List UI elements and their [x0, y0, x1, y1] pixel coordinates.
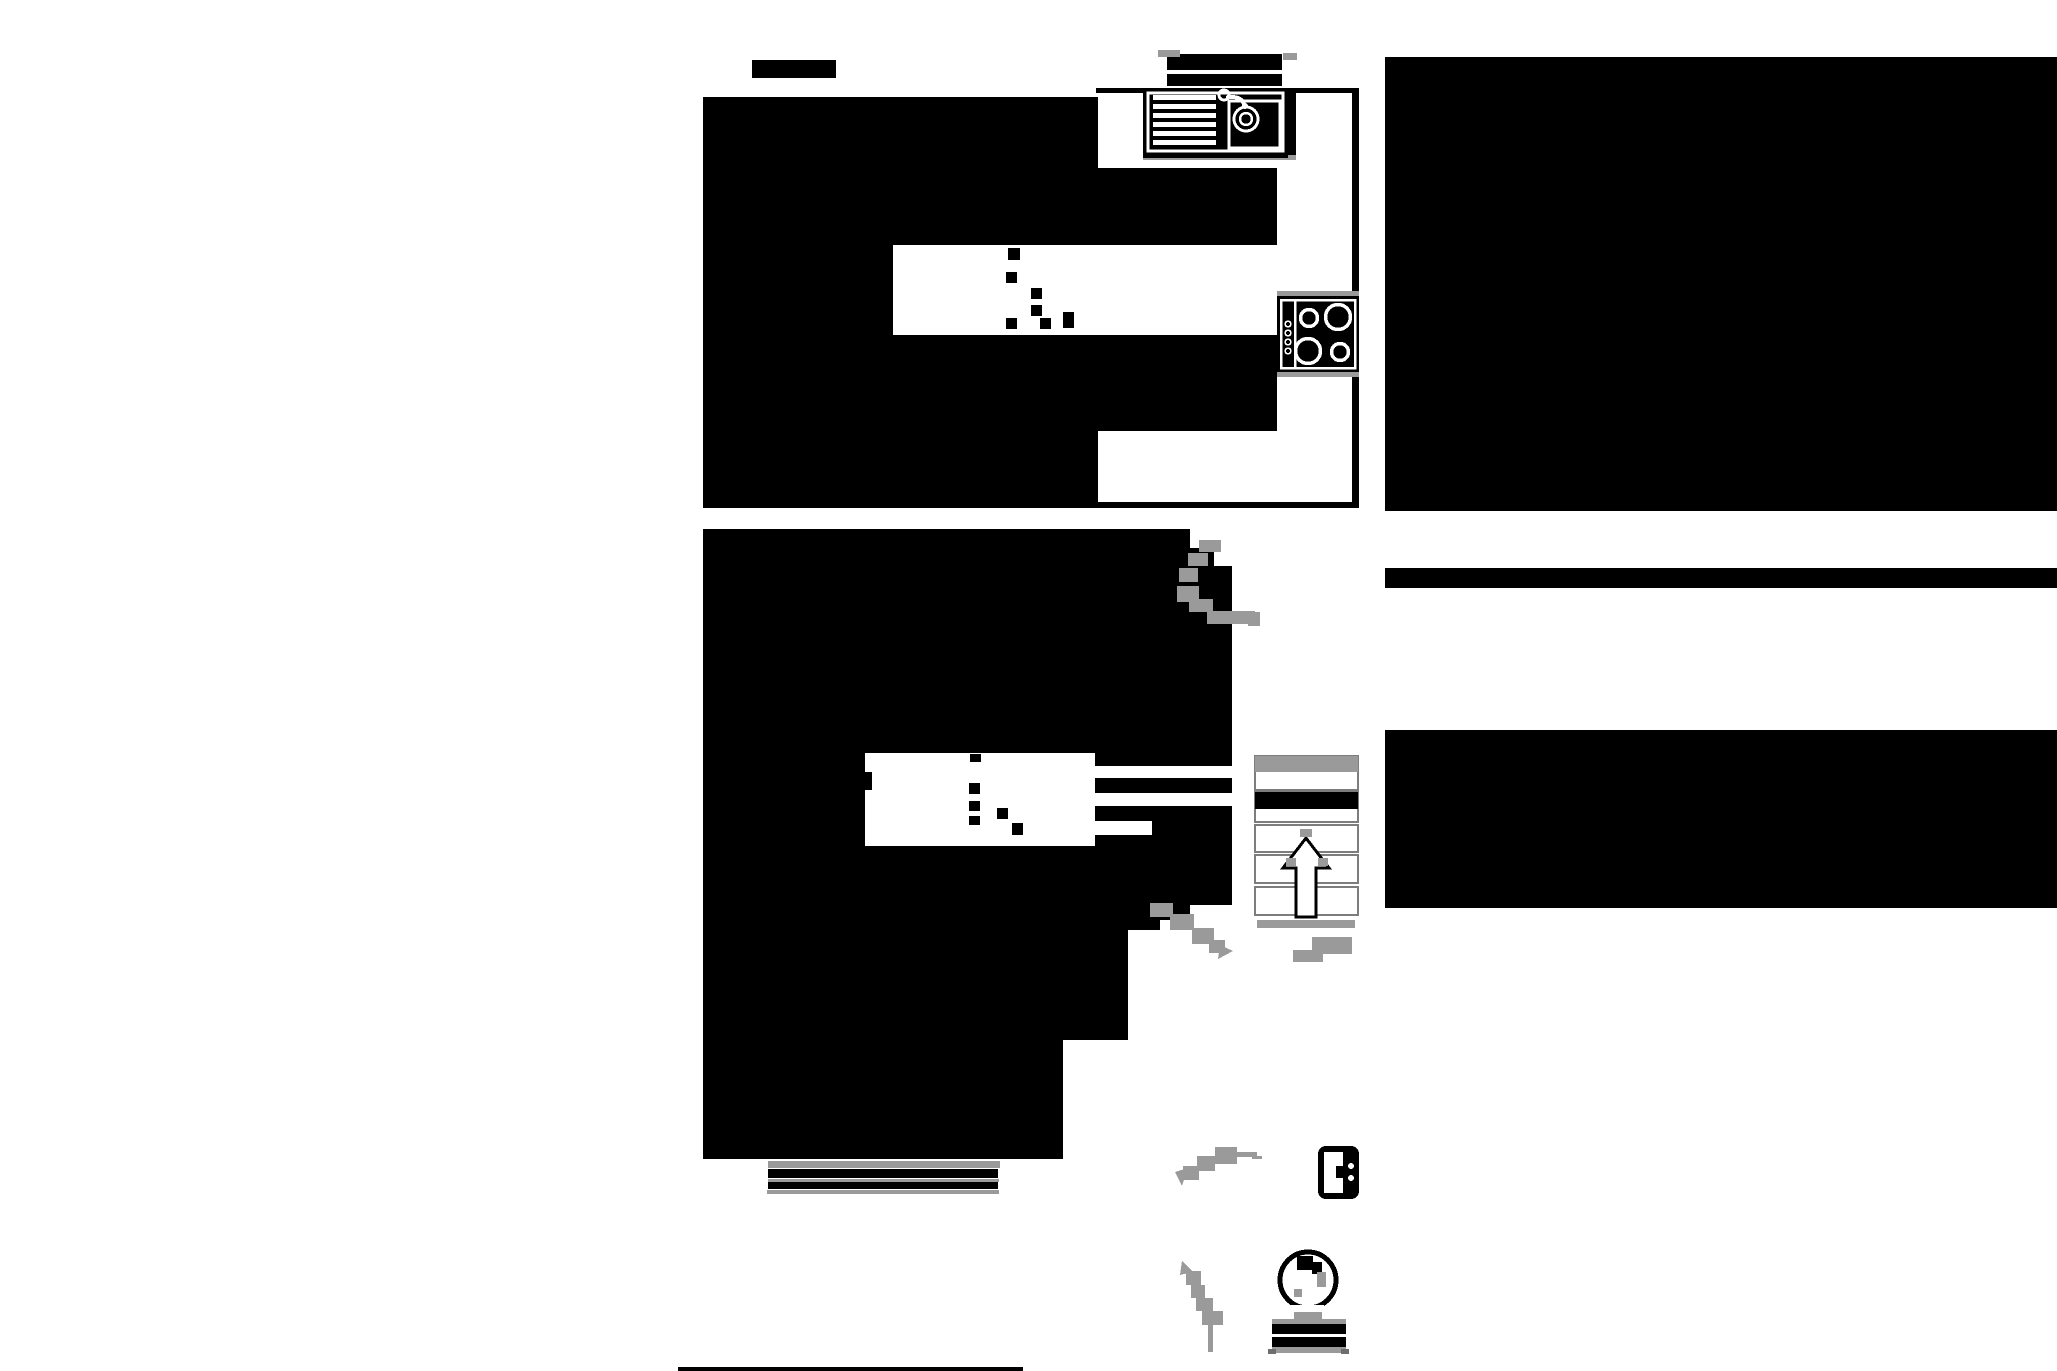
label-remnant-blob: [1095, 766, 1232, 778]
title-label-remnant: [752, 60, 836, 78]
zigzag-step: [1197, 1156, 1215, 1171]
kitchen-room-mass: [1098, 168, 1277, 245]
label-text-speck: [1031, 288, 1042, 299]
label-text-speck: [997, 808, 1008, 819]
floor-plan-page: [0, 0, 2057, 1371]
window-band: [1158, 50, 1180, 57]
stair-tread-band: [1255, 792, 1358, 809]
zigzag-step: [1189, 599, 1213, 612]
toilet-cistern: [1341, 1349, 1349, 1354]
faucet-tip: [1242, 103, 1248, 109]
bay-window-band: [768, 1179, 999, 1182]
bay-window-band: [767, 1190, 999, 1194]
zigzag-arrowhead: [1218, 945, 1233, 959]
adjacent-structure-block: [1385, 730, 2057, 908]
arrow-speck: [1318, 858, 1328, 866]
toilet-cistern: [1272, 1337, 1346, 1347]
kitchen-room-mass: [703, 97, 1098, 245]
hob-icon: [1277, 291, 1359, 377]
kitchen-wall: [1098, 502, 1359, 508]
toilet-cistern: [1272, 1324, 1346, 1334]
window-band: [1167, 74, 1282, 86]
zigzag-step: [1196, 1298, 1213, 1311]
sink-drainer-bar: [1153, 131, 1216, 136]
label-text-speck: [969, 783, 980, 794]
toilet-neck: [1294, 1312, 1322, 1320]
hob-edge-cap: [1277, 291, 1359, 296]
window-band: [1283, 53, 1297, 60]
label-remnant-blob: [1095, 793, 1232, 806]
arrow-speck: [1286, 858, 1296, 866]
kitchen-room-mass: [1098, 335, 1277, 431]
zigzag-step: [1248, 612, 1260, 626]
label-text-speck: [1031, 305, 1042, 316]
zigzag-step: [1191, 1285, 1205, 1298]
sink-drainer-bar: [1153, 140, 1216, 145]
door-hinge-dot: [1348, 1175, 1354, 1181]
bay-window-bands: [767, 1161, 1000, 1194]
stair-landing: [1293, 950, 1323, 962]
label-text-speck: [1040, 318, 1051, 329]
stair-tread-band: [1255, 756, 1358, 772]
toilet-bowl-mark: [1317, 1272, 1326, 1287]
label-text-speck: [865, 772, 872, 790]
label-text-speck: [1063, 312, 1074, 328]
bay-window-band: [768, 1161, 1000, 1168]
bay-window-band: [768, 1182, 998, 1189]
toilet-icon: [1268, 1252, 1349, 1354]
arrow-speck: [1300, 829, 1312, 837]
label-remnant-blob: [1040, 821, 1152, 835]
label-text-speck: [1006, 318, 1017, 329]
toilet-cistern: [1268, 1349, 1276, 1354]
door-icon: [1318, 1146, 1359, 1199]
zigzag-step: [1202, 1311, 1223, 1325]
kitchen-room-mass: [703, 245, 893, 335]
zigzag-step: [1207, 611, 1255, 624]
zigzag-step: [1179, 568, 1198, 582]
kitchen-wall: [1288, 88, 1296, 160]
adjacent-structure-block: [1385, 57, 2057, 511]
zigzag-step: [1186, 1271, 1201, 1285]
scale-bar-line: [678, 1367, 1023, 1371]
label-text-speck: [969, 816, 980, 825]
label-text-speck: [1008, 248, 1020, 260]
zigzag-step: [1215, 1147, 1237, 1164]
toilet-bowl-mark: [1294, 1289, 1302, 1297]
toilet-cistern: [1272, 1347, 1346, 1353]
kitchen-room-mass: [703, 335, 1098, 508]
sink-icon: [1143, 88, 1288, 158]
zigzag-step: [1150, 903, 1173, 917]
label-text-speck: [1012, 823, 1023, 835]
label-text-speck: [969, 801, 980, 811]
sink-drainer-bar: [1153, 104, 1216, 109]
door-latch: [1336, 1166, 1347, 1178]
label-text-speck: [1006, 272, 1017, 283]
sink-drainer-bar: [1153, 122, 1216, 127]
sink-drainer-bar: [1153, 95, 1216, 100]
zigzag-step: [1188, 553, 1208, 566]
floor-plan-drawing: [0, 0, 2057, 1371]
toilet-bowl-mark: [1297, 1256, 1313, 1270]
zigzag-step: [1252, 1156, 1262, 1159]
stair-tread: [1313, 887, 1358, 915]
zigzag-step: [1170, 914, 1194, 930]
adjacent-structure-blocks: [1385, 57, 2057, 908]
adjacent-structure-block: [1385, 568, 2057, 588]
window-band: [1167, 54, 1282, 70]
stair-tread: [1255, 887, 1298, 915]
title-label-remnant-bar: [752, 60, 836, 78]
bay-window-band: [768, 1169, 998, 1178]
hob-edge-cap: [1277, 372, 1359, 377]
sink-drainer-bar: [1153, 113, 1216, 118]
living-room-mass: [1128, 529, 1160, 930]
door-hinge-dot: [1348, 1163, 1354, 1169]
stair-base-bar: [1257, 920, 1355, 928]
staircase: [1255, 756, 1358, 962]
scale-bar: [678, 1367, 1023, 1371]
toilet-cistern: [1272, 1319, 1346, 1324]
zigzag-step: [1208, 1325, 1213, 1352]
zigzag-step: [1199, 540, 1221, 552]
label-text-speck: [970, 754, 981, 762]
